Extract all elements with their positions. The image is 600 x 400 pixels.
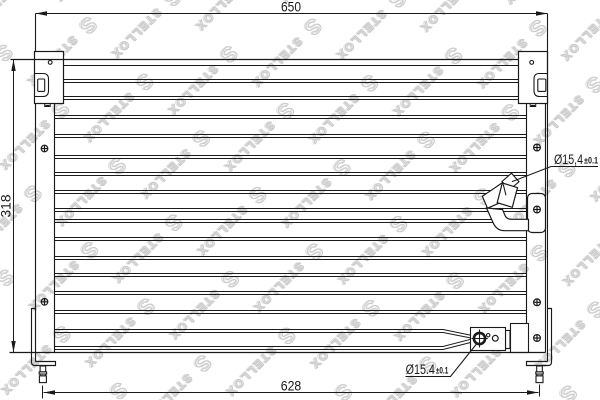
svg-text:318: 318 bbox=[0, 195, 14, 218]
svg-text:Ø15,4: Ø15,4 bbox=[554, 152, 583, 167]
svg-text:628: 628 bbox=[281, 378, 302, 393]
svg-text:Ø15.4: Ø15.4 bbox=[406, 362, 436, 377]
svg-text:±0.1: ±0.1 bbox=[584, 155, 598, 165]
svg-text:±0.1: ±0.1 bbox=[436, 365, 448, 375]
svg-text:650: 650 bbox=[281, 0, 301, 15]
